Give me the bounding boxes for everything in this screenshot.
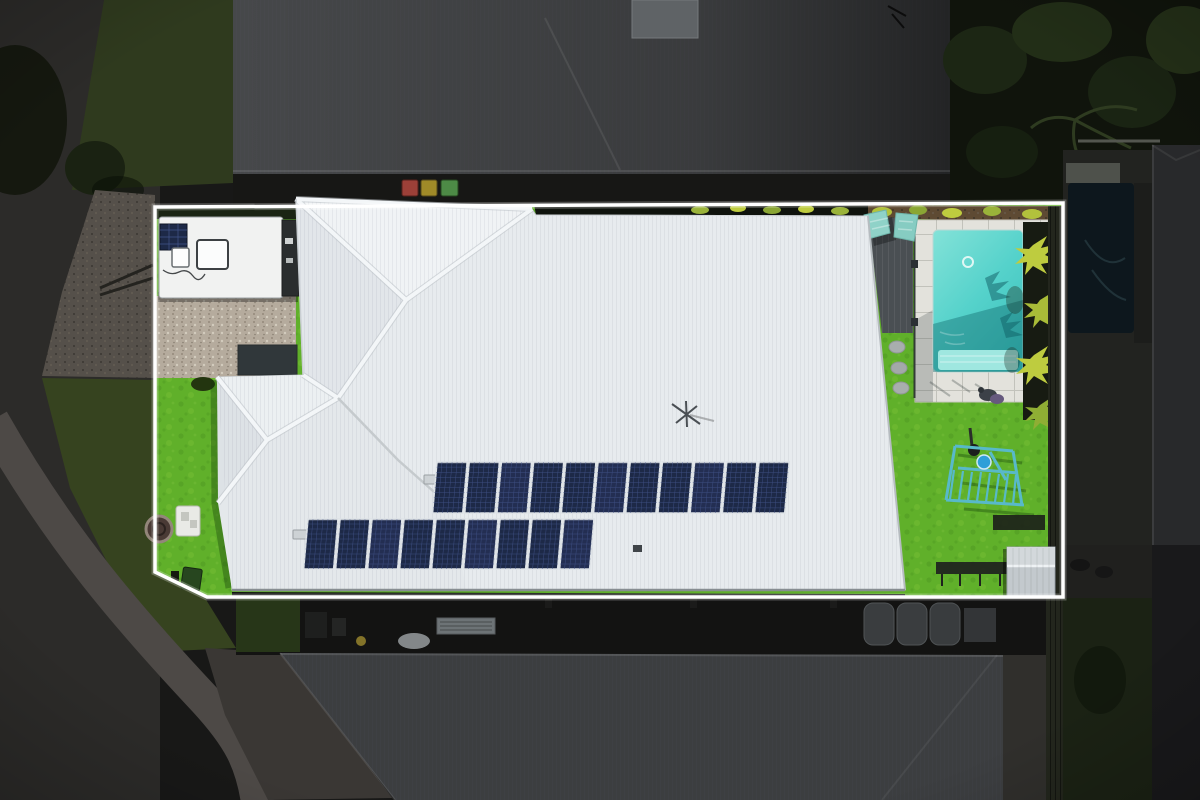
aerial-photo: [0, 0, 1200, 800]
vignette: [0, 0, 1200, 800]
aerial-photo-canvas: [0, 0, 1200, 800]
